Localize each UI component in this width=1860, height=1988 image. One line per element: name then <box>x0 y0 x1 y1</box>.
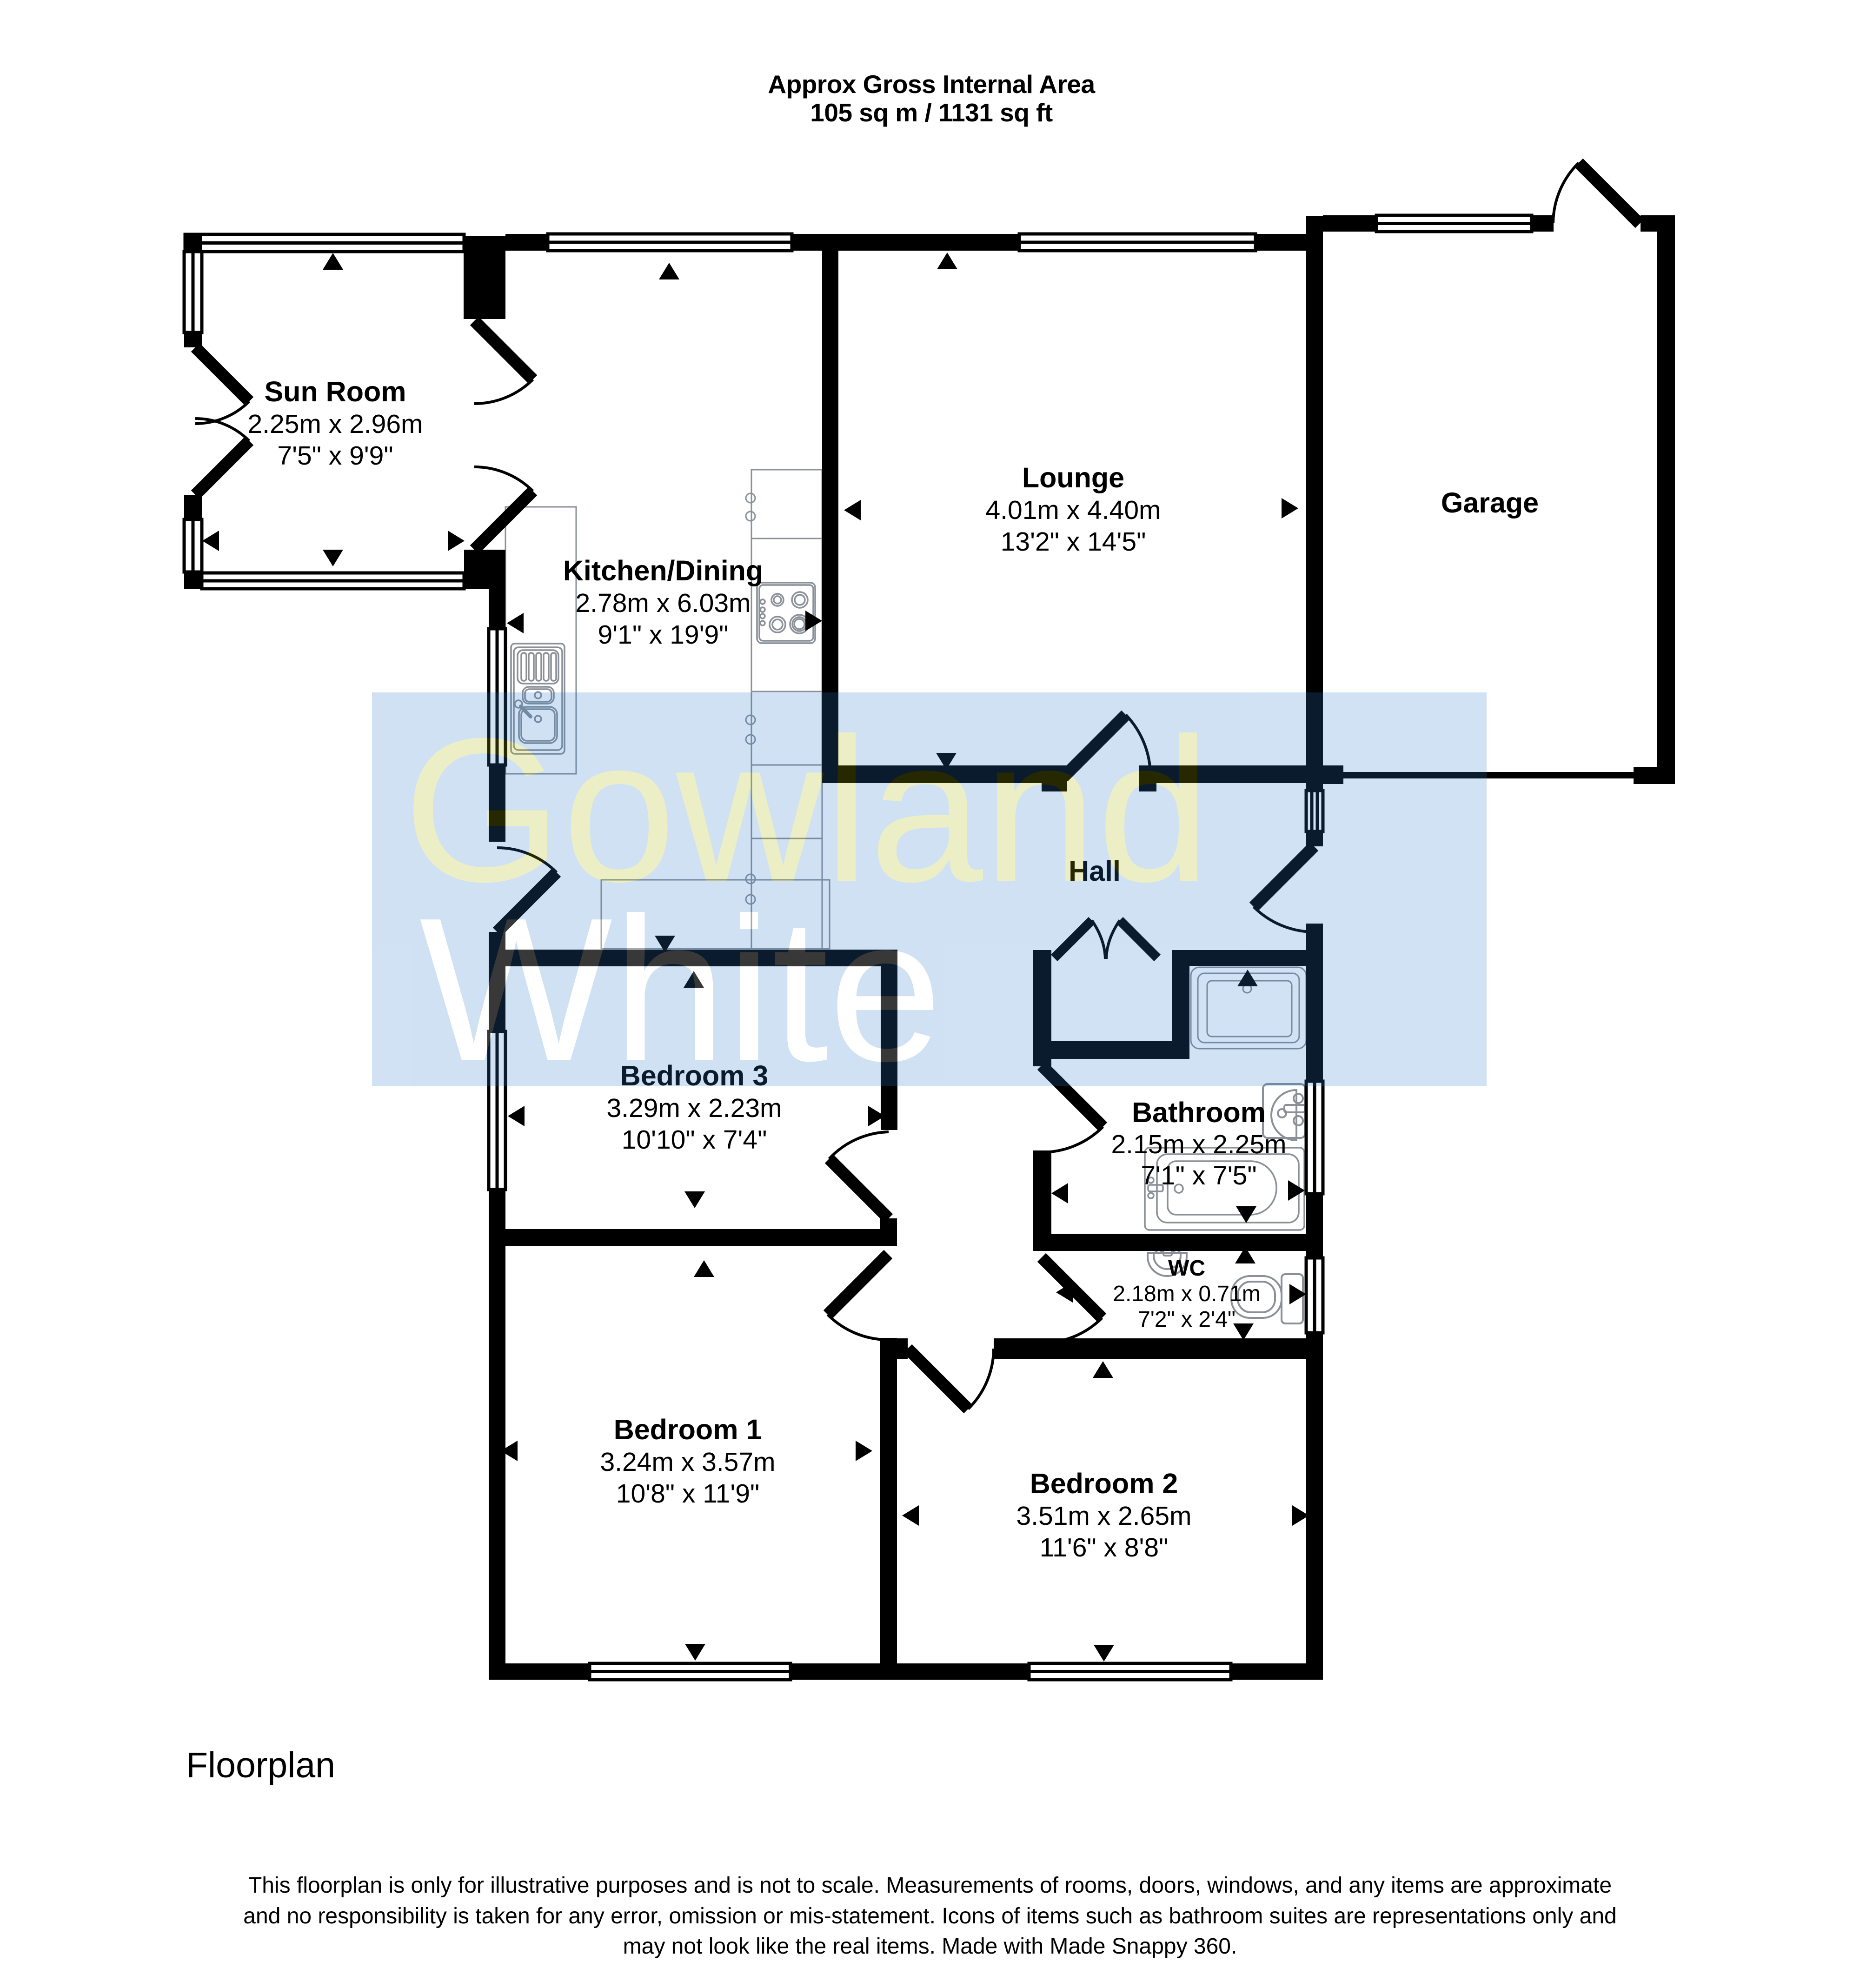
svg-text:White: White <box>419 876 943 1104</box>
svg-text:13'2" x 14'5": 13'2" x 14'5" <box>1001 527 1146 557</box>
svg-text:Garage: Garage <box>1441 487 1539 519</box>
svg-text:2.18m x 0.71m: 2.18m x 0.71m <box>1113 1282 1260 1306</box>
svg-text:7'1" x 7'5": 7'1" x 7'5" <box>1141 1161 1256 1190</box>
svg-text:9'1" x 19'9": 9'1" x 19'9" <box>598 620 729 650</box>
svg-text:Floorplan: Floorplan <box>186 1745 335 1785</box>
svg-text:Bedroom 1: Bedroom 1 <box>614 1414 762 1445</box>
svg-text:105 sq m / 1131 sq ft: 105 sq m / 1131 sq ft <box>810 98 1053 127</box>
svg-text:2.78m x 6.03m: 2.78m x 6.03m <box>575 588 751 618</box>
svg-text:7'2" x 2'4": 7'2" x 2'4" <box>1138 1307 1236 1332</box>
svg-text:2.25m x 2.96m: 2.25m x 2.96m <box>247 409 423 439</box>
svg-text:7'5" x 9'9": 7'5" x 9'9" <box>277 441 393 471</box>
svg-text:and no responsibility is taken: and no responsibility is taken for any e… <box>243 1904 1616 1928</box>
svg-text:4.01m x 4.40m: 4.01m x 4.40m <box>985 495 1161 525</box>
svg-text:11'6" x 8'8": 11'6" x 8'8" <box>1040 1533 1169 1562</box>
svg-text:3.24m x 3.57m: 3.24m x 3.57m <box>600 1447 775 1477</box>
svg-text:WC: WC <box>1168 1256 1205 1281</box>
svg-text:may not look like the real ite: may not look like the real items. Made w… <box>623 1934 1237 1959</box>
svg-text:Kitchen/Dining: Kitchen/Dining <box>563 555 763 586</box>
svg-text:Bedroom 2: Bedroom 2 <box>1030 1468 1178 1499</box>
svg-text:2.15m x 2.25m: 2.15m x 2.25m <box>1111 1130 1286 1159</box>
svg-text:Bathroom: Bathroom <box>1132 1097 1266 1128</box>
svg-text:This floorplan is only for ill: This floorplan is only for illustrative … <box>248 1873 1612 1898</box>
svg-text:Sun Room: Sun Room <box>265 376 406 407</box>
svg-text:10'10" x 7'4": 10'10" x 7'4" <box>622 1125 767 1155</box>
svg-text:Lounge: Lounge <box>1022 462 1124 493</box>
svg-text:Approx Gross Internal Area: Approx Gross Internal Area <box>768 70 1095 99</box>
svg-text:3.51m x 2.65m: 3.51m x 2.65m <box>1016 1501 1191 1531</box>
svg-text:10'8" x 11'9": 10'8" x 11'9" <box>616 1479 759 1509</box>
